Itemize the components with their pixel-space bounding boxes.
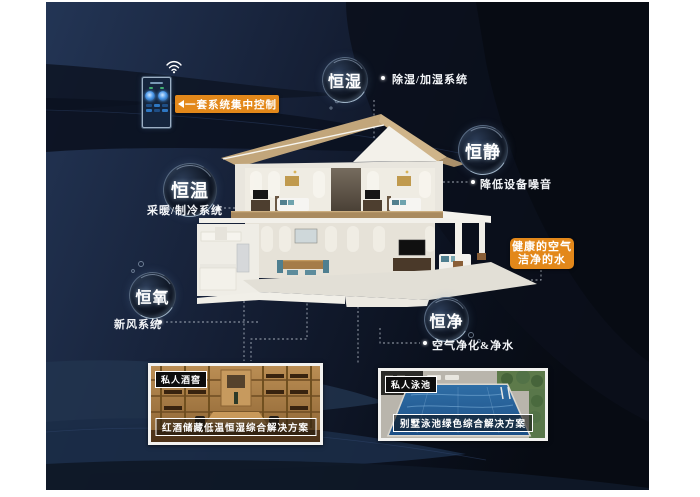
arrow-left-icon xyxy=(178,100,184,108)
oxygen-bubble-label: 恒氧 xyxy=(135,284,169,308)
temperature-system-label: 采暖/制冷系统 xyxy=(147,202,223,218)
smart-control-panel xyxy=(142,77,171,128)
panel-buttons-row2 xyxy=(146,109,168,112)
panel-status-lights xyxy=(149,87,164,89)
dial-left xyxy=(145,91,155,101)
upper-floor xyxy=(235,161,443,211)
mid-floor-slab xyxy=(199,211,491,223)
wine-cellar-tag: 私人酒窖 xyxy=(155,371,207,388)
purity-bubble-label: 恒净 xyxy=(429,308,463,332)
callout-line1: 健康的空气 xyxy=(512,241,572,254)
wine-cellar-photo: 私人酒窖 红酒储藏低温恒湿综合解决方案 xyxy=(148,363,323,445)
panel-header-bar xyxy=(150,82,163,84)
kitchen xyxy=(197,224,259,296)
quiet-dot xyxy=(471,180,475,184)
roof xyxy=(221,114,465,167)
humidity-bubble-label: 恒湿 xyxy=(328,68,362,92)
pool-photo: 私人泳池 别墅泳池绿色综合解决方案 xyxy=(378,368,548,441)
humidity-bubble: 恒湿 xyxy=(322,57,368,103)
pool-caption: 别墅泳池绿色综合解决方案 xyxy=(393,414,533,432)
humidity-dot xyxy=(381,76,385,80)
panel-dials xyxy=(145,91,168,101)
purity-system-label: 空气净化&净水 xyxy=(432,337,514,353)
infographic-page: 一套系统集中控制 恒湿 恒静 恒温 恒氧 恒净 除湿/加湿系统 降低设备噪音 采… xyxy=(0,0,700,497)
dark-canvas: 一套系统集中控制 恒湿 恒静 恒温 恒氧 恒净 除湿/加湿系统 降低设备噪音 采… xyxy=(46,2,649,490)
quiet-bubble-label: 恒静 xyxy=(465,138,501,163)
wine-cellar-caption: 红酒储藏低温恒湿综合解决方案 xyxy=(155,418,316,436)
oxygen-system-label: 新风系统 xyxy=(114,316,162,332)
quiet-bubble: 恒静 xyxy=(458,125,508,175)
dial-right xyxy=(158,91,168,101)
oxygen-bubble: 恒氧 xyxy=(129,272,176,319)
wifi-icon xyxy=(165,59,183,74)
humidity-system-label: 除湿/加湿系统 xyxy=(392,71,468,87)
purity-dot xyxy=(423,341,427,345)
quiet-system-label: 降低设备噪音 xyxy=(480,176,552,192)
callout-line2: 洁净的水 xyxy=(518,254,566,267)
central-control-tag: 一套系统集中控制 xyxy=(175,95,279,113)
pool-tag: 私人泳池 xyxy=(385,376,437,393)
healthy-air-callout: 健康的空气 洁净的水 xyxy=(510,238,574,269)
purity-bubble: 恒净 xyxy=(424,297,469,342)
central-control-label: 一套系统集中控制 xyxy=(185,97,277,112)
panel-buttons-row1 xyxy=(146,104,168,107)
temperature-bubble-label: 恒温 xyxy=(171,177,209,203)
